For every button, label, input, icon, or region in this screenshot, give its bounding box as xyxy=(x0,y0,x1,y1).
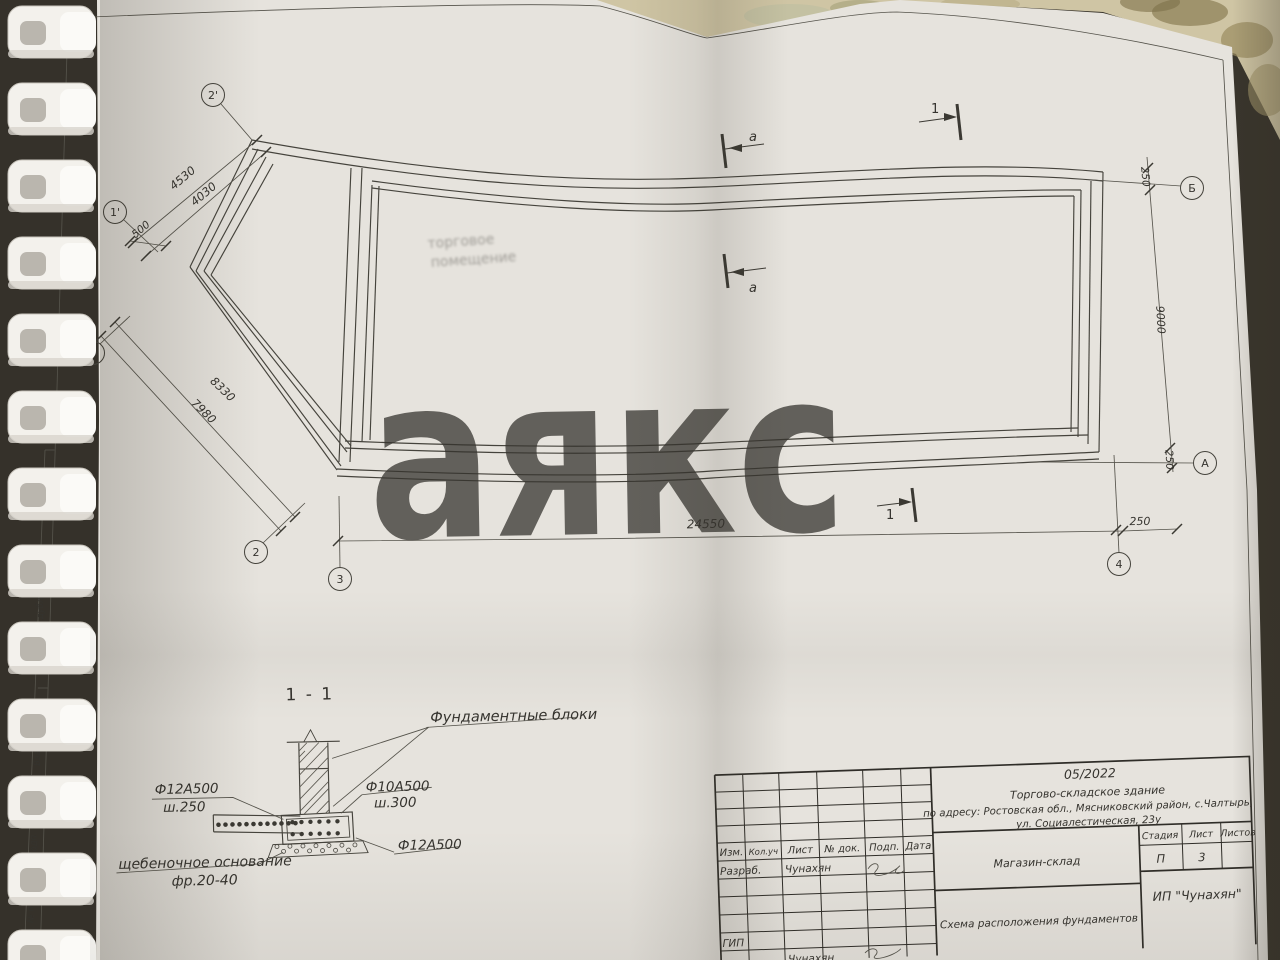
section-mark-a-bottom: а xyxy=(749,281,757,296)
section-mark-1-bottom: 1 xyxy=(886,508,894,523)
section-mark-a-top: а xyxy=(749,130,757,145)
binding-comb-ring xyxy=(8,314,96,366)
axis-bubble-label: 2 xyxy=(253,546,260,559)
axis-bubble-label: А xyxy=(1201,457,1209,470)
axis-bubble-label: 3 xyxy=(337,573,344,586)
detail-label-rebar-bottom: Ф12А500 xyxy=(398,837,462,854)
tb-header-data: Дата xyxy=(904,841,931,853)
dim-250-bottom-right: 250 xyxy=(1162,450,1175,471)
tb-header-koluch: Кол.уч xyxy=(749,847,779,858)
binding-comb-ring xyxy=(8,776,96,828)
tb-gip-name: Чунахян xyxy=(788,952,835,960)
dim-250-bottom: 250 xyxy=(1129,515,1150,528)
dim-250-top-right: 250 xyxy=(1138,166,1152,187)
axis-bubble-label: 4 xyxy=(1116,558,1123,571)
detail-label-base-2: фр.20-40 xyxy=(172,872,238,889)
tb-header-list2: Лист xyxy=(1188,829,1214,841)
photo-of-foundation-drawing: Инв. № дубл. Взам. инв. № Подп. и дата И… xyxy=(0,0,1280,960)
binding-comb-ring xyxy=(8,545,96,597)
tb-date: 05/2022 xyxy=(1064,765,1116,782)
tb-header-listov: Листов xyxy=(1219,827,1256,839)
detail-title: 1 - 1 xyxy=(285,684,334,705)
binding-comb-ring xyxy=(8,237,96,289)
tb-value-list: 3 xyxy=(1198,850,1206,864)
tb-header-stadia: Стадия xyxy=(1142,830,1179,842)
axis-bubble-label: 1' xyxy=(110,206,120,219)
binding-comb-ring xyxy=(8,83,96,135)
binding-comb-ring xyxy=(8,699,96,751)
section-mark-1-top: 1 xyxy=(931,102,939,117)
tb-row-razrab: Разраб. xyxy=(720,865,762,878)
tb-value-stadia: П xyxy=(1156,851,1165,865)
binding-comb-ring xyxy=(8,160,96,212)
tb-header-podp: Подп. xyxy=(869,842,900,854)
detail-label-rebar-left-1: Ф12А500 xyxy=(155,781,219,798)
axis-bubble-label: 2' xyxy=(208,89,218,102)
detail-label-rebar-left-2: ш.250 xyxy=(163,799,206,816)
tb-header-ndok: № док. xyxy=(823,843,860,855)
tb-row-gip: ГИП xyxy=(722,937,744,950)
axis-bubble-label: Б xyxy=(1188,182,1196,195)
binding-comb-ring xyxy=(8,930,96,960)
binding-comb-ring xyxy=(8,853,96,905)
binding-comb-ring xyxy=(8,6,96,58)
binding-comb-ring xyxy=(8,391,96,443)
tb-header-izm: Изм. xyxy=(719,847,743,859)
tb-header-list: Лист xyxy=(787,845,815,857)
dim-9000: 9000 xyxy=(1153,305,1167,334)
detail-label-rebar-right-1: Ф10А500 xyxy=(366,778,430,795)
detail-label-rebar-right-2: ш.300 xyxy=(374,795,417,812)
watermark-ayaks: аякс xyxy=(366,322,848,592)
binding-comb-ring xyxy=(8,622,96,674)
binding-comb-ring xyxy=(8,468,96,520)
tb-razrab-name: Чунахян xyxy=(785,862,832,876)
tb-company: ИП "Чунахян" xyxy=(1152,886,1242,904)
